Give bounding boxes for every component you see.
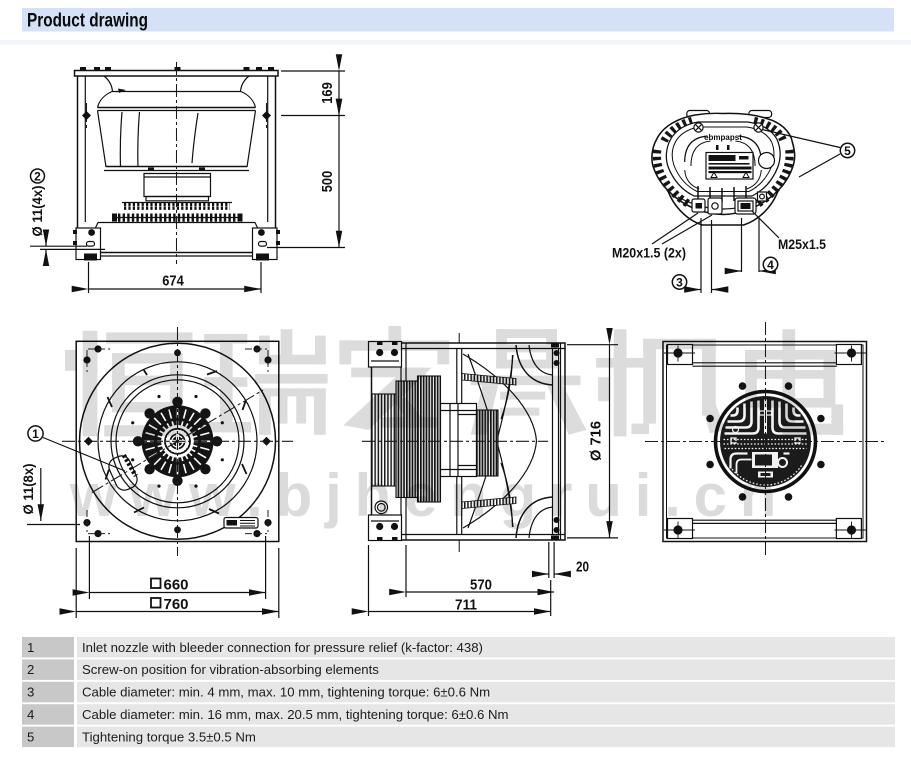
svg-text:2: 2 xyxy=(34,170,41,184)
svg-text:3: 3 xyxy=(27,685,34,700)
svg-text:Cable diameter: min. 4 mm, max: Cable diameter: min. 4 mm, max. 10 mm, t… xyxy=(82,685,490,700)
svg-text:1: 1 xyxy=(32,427,39,441)
svg-text:5: 5 xyxy=(844,144,851,158)
svg-text:Cable diameter: min. 16 mm, ma: Cable diameter: min. 16 mm, max. 20.5 mm… xyxy=(82,707,509,722)
svg-text:760: 760 xyxy=(164,596,189,613)
svg-text:500: 500 xyxy=(319,171,336,193)
svg-text:4: 4 xyxy=(767,258,774,272)
svg-text:5: 5 xyxy=(27,729,34,744)
svg-text:M20x1.5 (2x): M20x1.5 (2x) xyxy=(612,246,686,261)
svg-text:www.bjhengrui.cn: www.bjhengrui.cn xyxy=(69,462,789,529)
svg-text:4: 4 xyxy=(27,707,34,722)
svg-text:20: 20 xyxy=(576,559,589,576)
svg-text:Screw-on position for vibratio: Screw-on position for vibration-absorbin… xyxy=(82,662,379,677)
svg-text:Tightening torque 3.5±0.5 Nm: Tightening torque 3.5±0.5 Nm xyxy=(82,729,256,744)
svg-text:674: 674 xyxy=(162,273,184,290)
svg-text:Inlet nozzle with bleeder conn: Inlet nozzle with bleeder connection for… xyxy=(82,640,483,655)
svg-text:Ø 11(4x): Ø 11(4x) xyxy=(30,186,45,237)
svg-text:Ø 11(8x): Ø 11(8x) xyxy=(21,464,36,515)
svg-text:1: 1 xyxy=(27,640,34,655)
svg-text:ebmpapst: ebmpapst xyxy=(704,133,742,142)
svg-text:2: 2 xyxy=(27,662,34,677)
svg-text:570: 570 xyxy=(470,577,492,594)
svg-text:711: 711 xyxy=(455,597,477,614)
svg-text:660: 660 xyxy=(164,577,189,594)
svg-text:3: 3 xyxy=(676,276,683,290)
svg-text:Product drawing: Product drawing xyxy=(27,11,148,32)
svg-text:M25x1.5: M25x1.5 xyxy=(778,237,826,252)
svg-text:169: 169 xyxy=(319,82,336,104)
svg-text:Ø 716: Ø 716 xyxy=(588,421,605,461)
